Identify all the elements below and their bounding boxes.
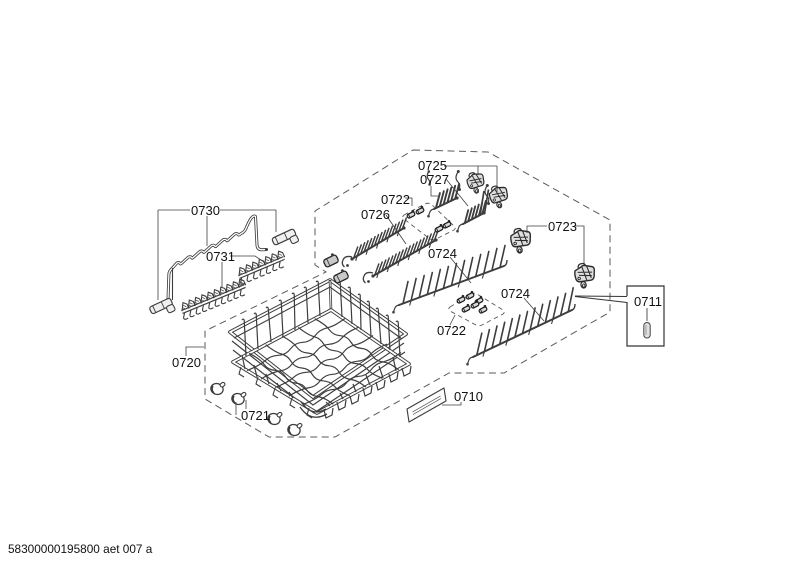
svg-text:0725: 0725 [418,158,447,173]
svg-text:0710: 0710 [454,389,483,404]
svg-text:0727: 0727 [420,172,449,187]
svg-text:0724: 0724 [501,286,530,301]
svg-text:0724: 0724 [428,246,457,261]
svg-text:0722: 0722 [437,323,466,338]
svg-text:0731: 0731 [206,249,235,264]
svg-text:0721: 0721 [241,408,270,423]
svg-text:0711: 0711 [634,294,662,309]
svg-text:0720: 0720 [172,355,201,370]
svg-text:0730: 0730 [191,203,220,218]
svg-text:58300000195800 aet 007 a: 58300000195800 aet 007 a [8,542,153,556]
svg-text:0722: 0722 [381,192,410,207]
svg-text:0723: 0723 [548,219,577,234]
svg-text:0726: 0726 [361,207,390,222]
